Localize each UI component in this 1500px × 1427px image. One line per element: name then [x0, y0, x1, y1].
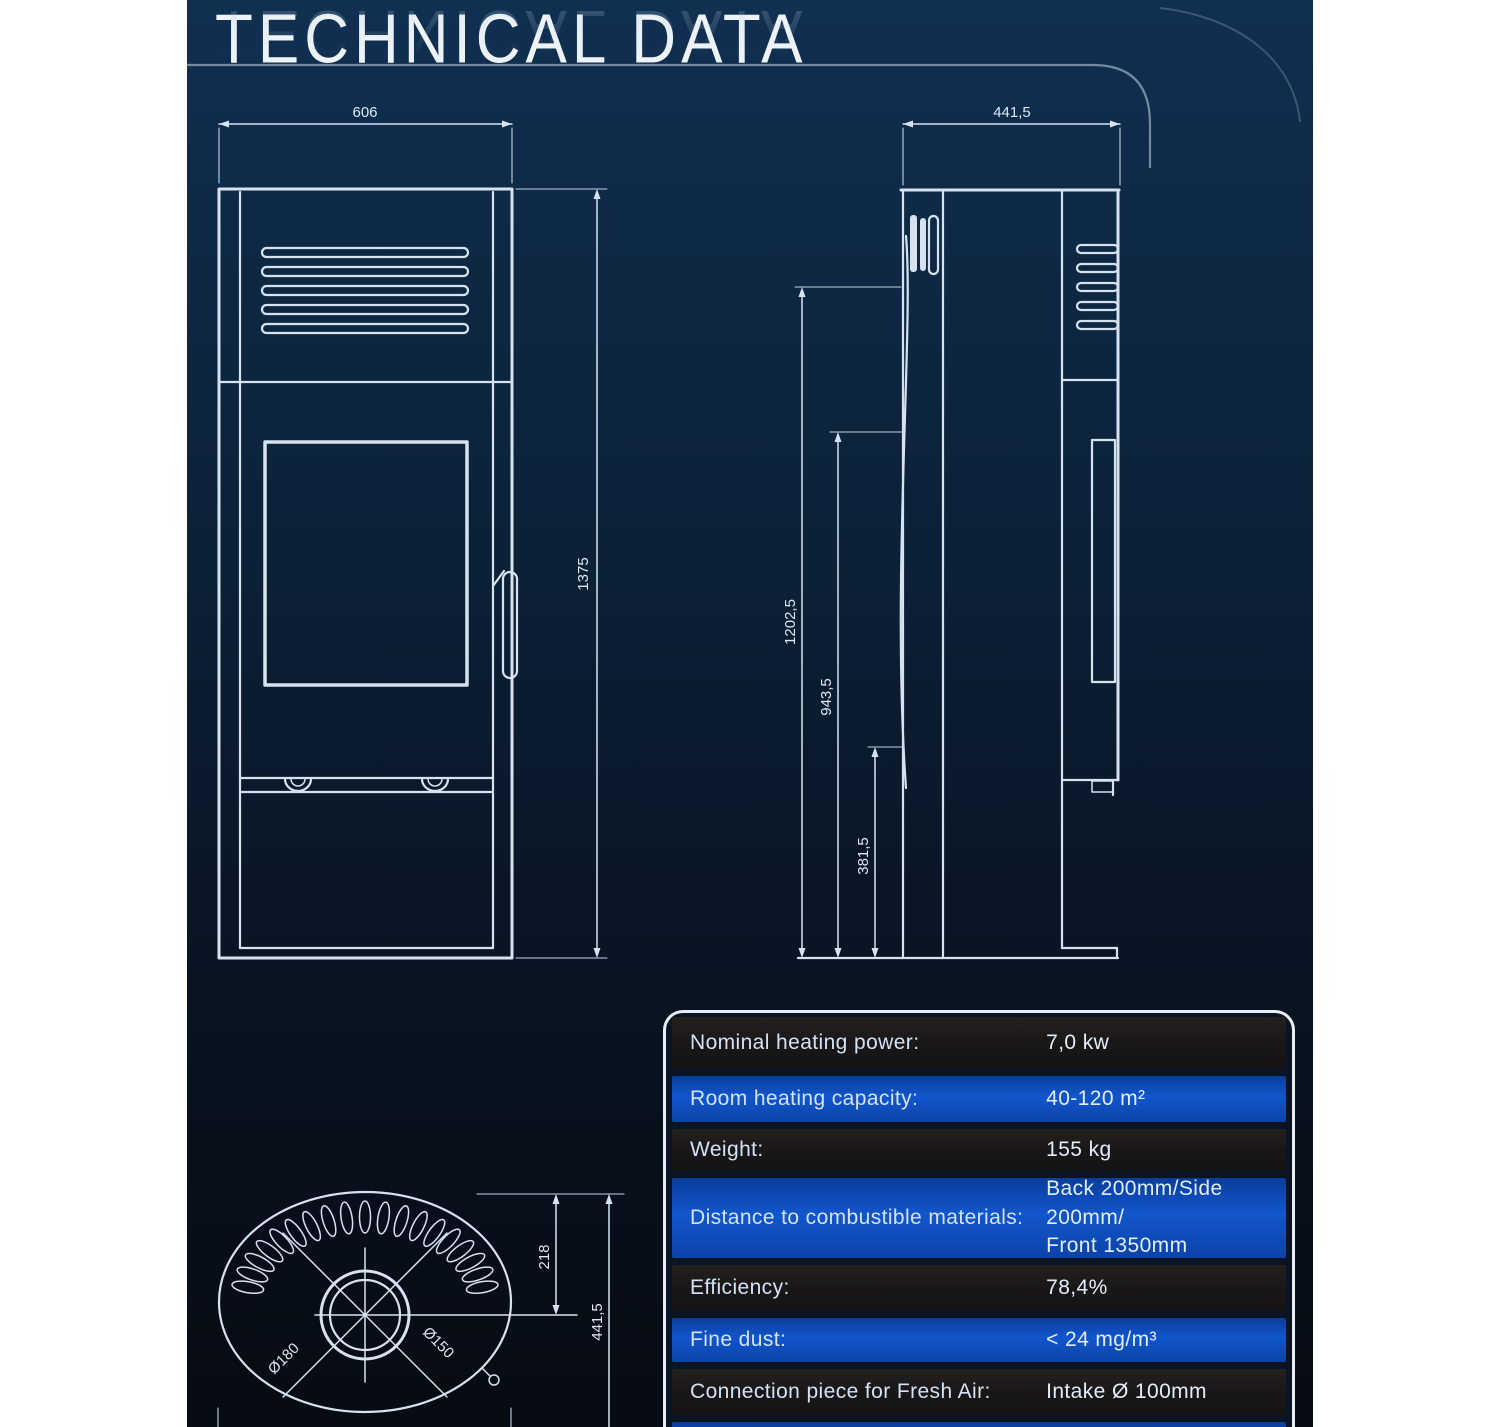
table-row-partial	[672, 1422, 1286, 1427]
side-view-drawing: 441,5	[782, 104, 1120, 958]
technical-data-sheet: TECHNICAL DATA TECHNICAL DATA 606	[187, 0, 1313, 1427]
flue-outer-diameter-label: Ø180	[265, 1340, 303, 1378]
top-offset-dimension: 218	[477, 1194, 624, 1315]
side-height-mid-label: 943,5	[818, 678, 835, 716]
spec-value: 40-120 m²	[1046, 1085, 1286, 1113]
side-height-total-label: 1202,5	[782, 599, 799, 645]
page: TECHNICAL DATA TECHNICAL DATA 606	[0, 0, 1500, 1427]
spec-label: Nominal heating power:	[672, 1031, 1046, 1055]
front-height-label: 1375	[575, 557, 592, 590]
spec-label: Weight:	[672, 1138, 1046, 1162]
spec-label: Efficiency:	[672, 1276, 1046, 1300]
front-view-drawing: 606	[219, 104, 607, 958]
front-height-dimension: 1375	[516, 189, 607, 958]
side-foot	[1062, 948, 1117, 958]
side-vent-slats	[1077, 245, 1118, 329]
table-row: Distance to combustible materials: Back …	[672, 1178, 1286, 1258]
spec-value: 155 kg	[1046, 1136, 1286, 1164]
side-depth-dimension: 441,5	[903, 104, 1120, 185]
side-height-mid-dimension: 943,5	[818, 432, 903, 958]
top-offset-label: 218	[536, 1244, 553, 1269]
table-row: Weight: 155 kg	[672, 1129, 1286, 1171]
side-rear-step	[1062, 780, 1118, 795]
front-hinges	[240, 778, 493, 792]
table-row: Nominal heating power: 7,0 kw	[672, 1017, 1286, 1069]
side-handle-knob	[910, 215, 938, 274]
table-row: Connection piece for Fresh Air: Intake Ø…	[672, 1369, 1286, 1415]
spec-label: Fine dust:	[672, 1328, 1046, 1352]
front-width-dimension: 606	[219, 104, 512, 183]
spec-label: Room heating capacity:	[672, 1087, 1046, 1111]
flue-inner-diameter-label: Ø150	[419, 1324, 457, 1362]
spec-value: 7,0 kw	[1046, 1029, 1286, 1057]
spec-value: 78,4%	[1046, 1274, 1286, 1302]
spec-value: < 24 mg/m³	[1046, 1326, 1286, 1354]
side-depth-label: 441,5	[993, 104, 1031, 121]
side-height-low-label: 381,5	[855, 837, 872, 875]
top-view-drawing: Ø180 Ø150 218	[218, 1192, 624, 1427]
table-row: Efficiency: 78,4%	[672, 1265, 1286, 1311]
spec-label: Connection piece for Fresh Air:	[672, 1380, 1046, 1404]
spec-table: Nominal heating power: 7,0 kw Room heati…	[663, 1010, 1295, 1427]
front-door-window	[265, 442, 467, 685]
table-row: Fine dust: < 24 mg/m³	[672, 1318, 1286, 1362]
top-depth-label: 441,5	[589, 1303, 606, 1341]
top-knob-detail	[482, 1368, 499, 1385]
spec-value: Intake Ø 100mm	[1046, 1378, 1286, 1406]
title-underline-swoosh	[187, 8, 1300, 168]
table-row: Room heating capacity: 40-120 m²	[672, 1076, 1286, 1122]
side-door-curve	[901, 236, 908, 788]
spec-label: Distance to combustible materials:	[672, 1206, 1046, 1230]
top-flue-collar	[283, 1233, 577, 1397]
front-vent-slats	[262, 248, 468, 333]
side-height-total-dimension: 1202,5	[782, 287, 901, 958]
top-depth-dimension: 441,5	[589, 1194, 613, 1427]
side-rear-recess	[1092, 440, 1115, 682]
spec-value: Back 200mm/Side 200mm/ Front 1350mm	[1046, 1175, 1286, 1260]
front-width-label: 606	[352, 104, 377, 121]
side-height-low-dimension: 381,5	[855, 747, 903, 958]
